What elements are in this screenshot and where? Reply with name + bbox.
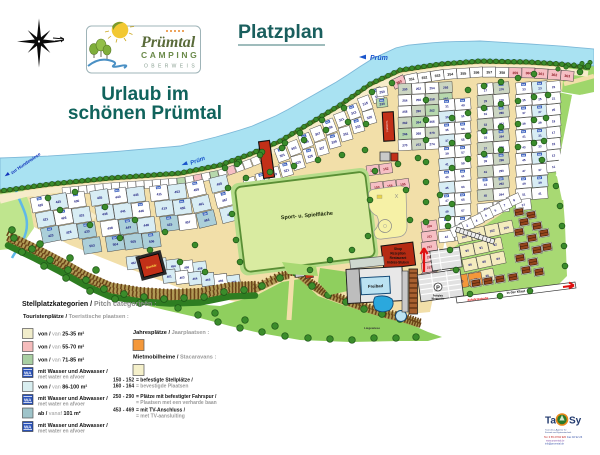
svg-text:Tel. 0 65 27/92 920: Tel. 0 65 27/92 920 [544, 435, 567, 439]
svg-text:von / van 25-35 m²: von / van 25-35 m² [38, 332, 84, 338]
svg-text:von / van 55-70 m²: von / van 55-70 m² [38, 345, 84, 351]
svg-text:250 - 290: 250 - 290 [113, 394, 134, 400]
svg-text:info@pruemtal.de: info@pruemtal.de [545, 443, 565, 446]
svg-text:von / van 71-85 m²: von / van 71-85 m² [38, 358, 84, 364]
svg-text:WA: WA [24, 398, 32, 403]
svg-text:von / van 86-100 m²: von / van 86-100 m² [38, 385, 87, 391]
svg-text:met water en afvoer: met water en afvoer [38, 375, 85, 381]
svg-text:Mietmobilheime / Stacaravans :: Mietmobilheime / Stacaravans : [133, 355, 216, 361]
svg-text:= Plaatsen met een verharde ba: = Plaatsen met een verharde baan [136, 400, 217, 406]
svg-text:Ta: Ta [545, 416, 556, 427]
svg-text:= bevestigde Plaatsen: = bevestigde Plaatsen [136, 384, 188, 390]
svg-text:Freizeit und Systemtechnik: Freizeit und Systemtechnik [545, 431, 572, 434]
svg-text:160 - 164: 160 - 164 [113, 384, 134, 390]
svg-text:Jahresplätze / Jaarplaatsen :: Jahresplätze / Jaarplaatsen : [133, 330, 209, 336]
svg-text:Fax 92 92 26: Fax 92 92 26 [567, 435, 583, 439]
svg-text:WA: WA [24, 425, 32, 430]
svg-text:met water en afvoer: met water en afvoer [38, 402, 85, 408]
svg-text:453 - 469: 453 - 469 [113, 408, 134, 414]
svg-text:met water en afvoer: met water en afvoer [38, 429, 85, 435]
svg-text:Sy: Sy [569, 416, 582, 427]
svg-text:= met TV-aansluiting: = met TV-aansluiting [136, 414, 185, 420]
svg-text:ab / vanaf 101 m²: ab / vanaf 101 m² [38, 411, 81, 417]
svg-text:WA: WA [24, 371, 32, 376]
